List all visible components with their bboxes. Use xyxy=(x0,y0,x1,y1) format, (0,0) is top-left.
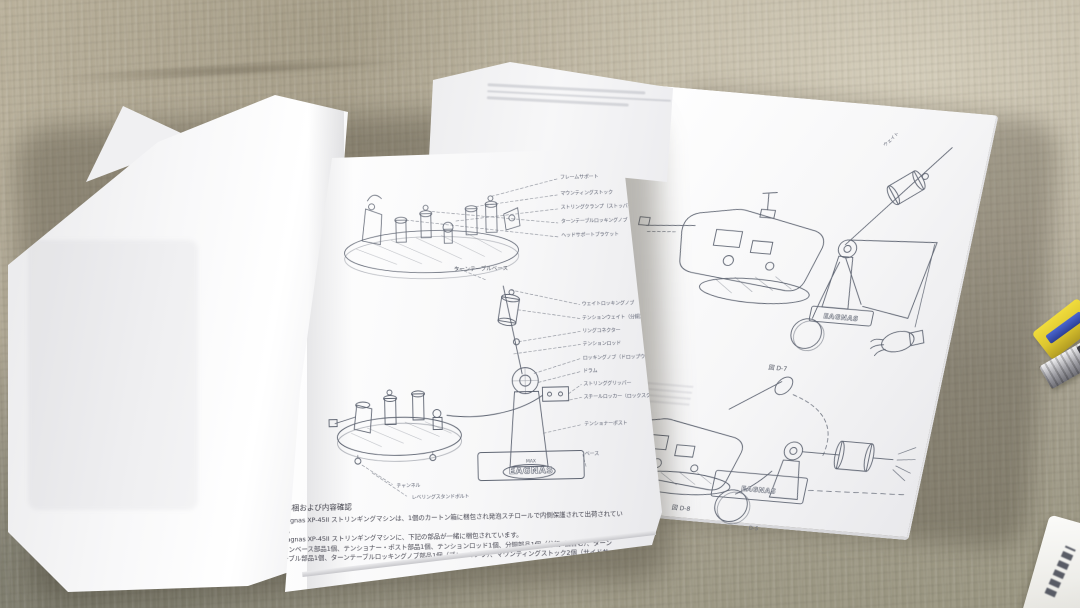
show-through-blob xyxy=(28,240,198,510)
eagnas-logo: EAGNAS xyxy=(509,466,554,477)
callout-label: テンショナーポスト xyxy=(584,421,627,428)
callout-label: ロッキングノブ（ドロップウェイト） xyxy=(583,354,664,362)
callout-label: ベース xyxy=(585,451,599,457)
photo-scene: EAGNAS ウェイト 図 D-7 xyxy=(0,0,1080,608)
callout-label: フレームサポート xyxy=(560,174,598,181)
box-print-marks xyxy=(1045,545,1076,597)
callout-label: レベリングスタンドボルト xyxy=(412,494,470,501)
callout-label: マウンティングストック xyxy=(560,190,613,197)
metal-part-cap xyxy=(1076,343,1080,366)
page-number: D-5 xyxy=(748,525,759,532)
callout-label: ドラム xyxy=(583,368,597,374)
callout-label: リングコネクター xyxy=(582,328,620,335)
callout-label: ウェイトロッキングノブ xyxy=(582,300,635,307)
eagnas-logo: EAGNAS xyxy=(740,484,777,496)
callout-label: テンションウェイト（分銅） xyxy=(582,314,645,321)
callout-label: テンションロッド xyxy=(582,341,621,348)
callout-label: ストリンググリッパー xyxy=(583,380,631,387)
figure-d7-caption: 図 D-7 xyxy=(768,363,788,373)
callout-label: ヘッドサポートブラケット xyxy=(561,232,619,239)
max-logo-mark: MAX xyxy=(526,458,536,464)
left-booklet: フレームサポート マウンティングストック ストリングクランプ（ストッパー付） タ… xyxy=(0,0,700,608)
callout-label: チャンネル xyxy=(396,483,420,489)
eagnas-logo: EAGNAS xyxy=(823,311,860,323)
callout-label: ストリングクランプ（ストッパー付） xyxy=(561,203,642,211)
callout-label: スチールロッカー（ロックスクリュー） xyxy=(584,393,670,401)
base-diagram-caption: ターンテーブルベース xyxy=(454,264,508,273)
show-through-text xyxy=(487,83,672,112)
